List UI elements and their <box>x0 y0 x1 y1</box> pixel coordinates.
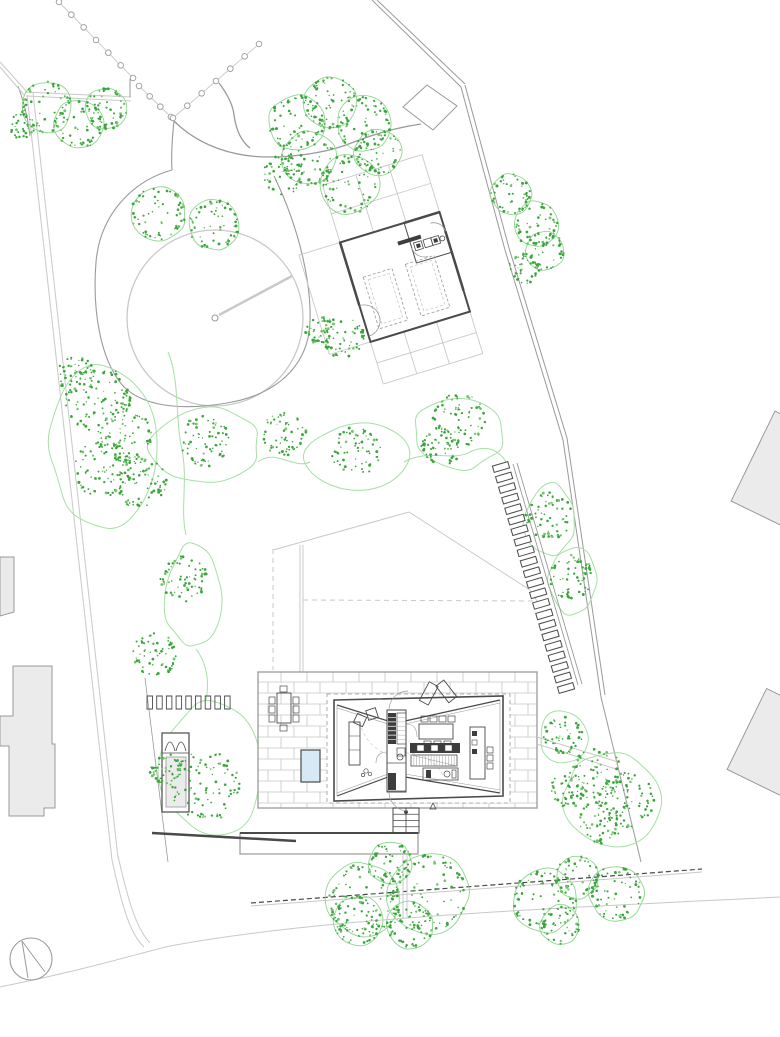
driveway <box>174 83 457 157</box>
site-plan <box>0 0 780 1037</box>
garage-building <box>340 212 470 342</box>
hillside-steps <box>492 462 582 694</box>
lawn-circle <box>95 121 310 407</box>
site-plan-drawing <box>0 0 780 1037</box>
roof-outline <box>273 512 537 672</box>
north-compass <box>10 938 52 980</box>
